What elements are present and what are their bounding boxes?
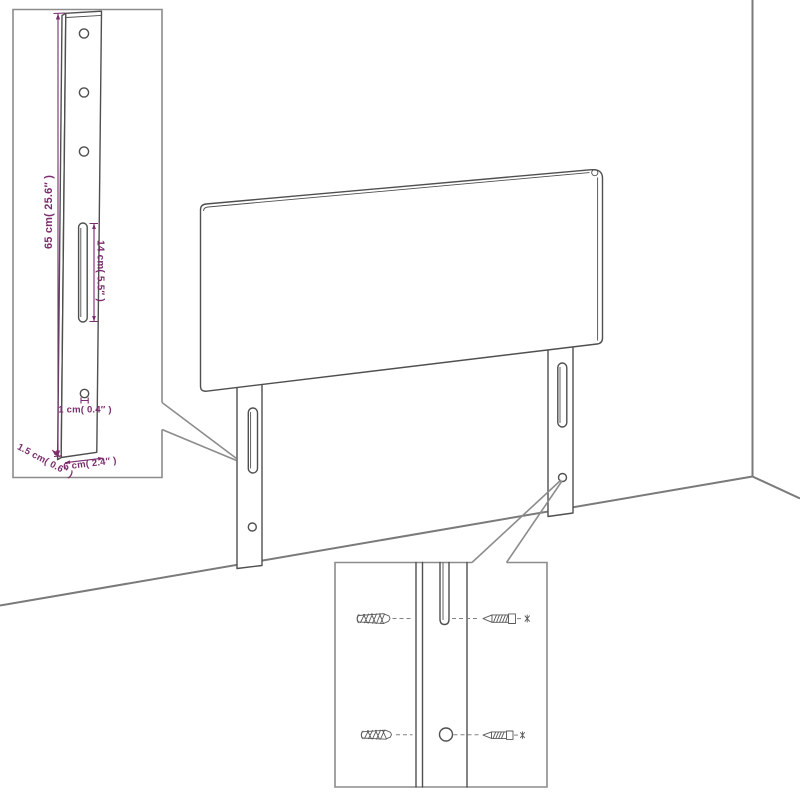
diagram-canvas: 65 cm( 25.6″ ) 14 cm( 5.5″ ) 1 cm( 0.4″ … xyxy=(0,0,800,800)
headboard-panel xyxy=(201,170,603,392)
callout-wedge-left-line xyxy=(472,480,561,563)
phillips-cross-icon xyxy=(521,732,525,739)
dim-label-length: 65 cm( 25.6″ ) xyxy=(43,175,55,249)
wall-plug-icon xyxy=(361,730,391,739)
floor-line-right xyxy=(753,477,800,499)
phillips-cross-icon xyxy=(525,615,530,622)
headboard-leg-right xyxy=(548,347,573,517)
headboard-leg-left xyxy=(237,382,262,569)
leg-slot xyxy=(248,408,257,473)
dim-label-hole: 1 cm( 0.4″ ) xyxy=(58,405,111,416)
callout-wedge-upper-line xyxy=(162,403,237,459)
strip-hole xyxy=(440,728,453,741)
dim-label-slot: 14 cm( 5.5″ ) xyxy=(95,240,106,302)
screw-icon xyxy=(483,731,525,739)
floor-line-left xyxy=(0,477,753,606)
inset-mounting-detail xyxy=(335,480,562,787)
leg-strut-drawing xyxy=(58,11,102,460)
screw-icon xyxy=(483,614,530,624)
headboard-assembly-diagram xyxy=(0,0,800,800)
leg-slot xyxy=(558,363,567,427)
wall-plug-icon xyxy=(357,614,390,624)
strip-slot xyxy=(440,563,449,625)
mounting-leg-strip xyxy=(416,563,467,788)
panel-outline xyxy=(201,170,603,392)
strut-slot xyxy=(79,223,88,322)
inset-mounting-border xyxy=(335,563,547,788)
dim-arrow-length-top xyxy=(56,14,60,20)
callout-wedge-lower-line xyxy=(162,430,237,461)
